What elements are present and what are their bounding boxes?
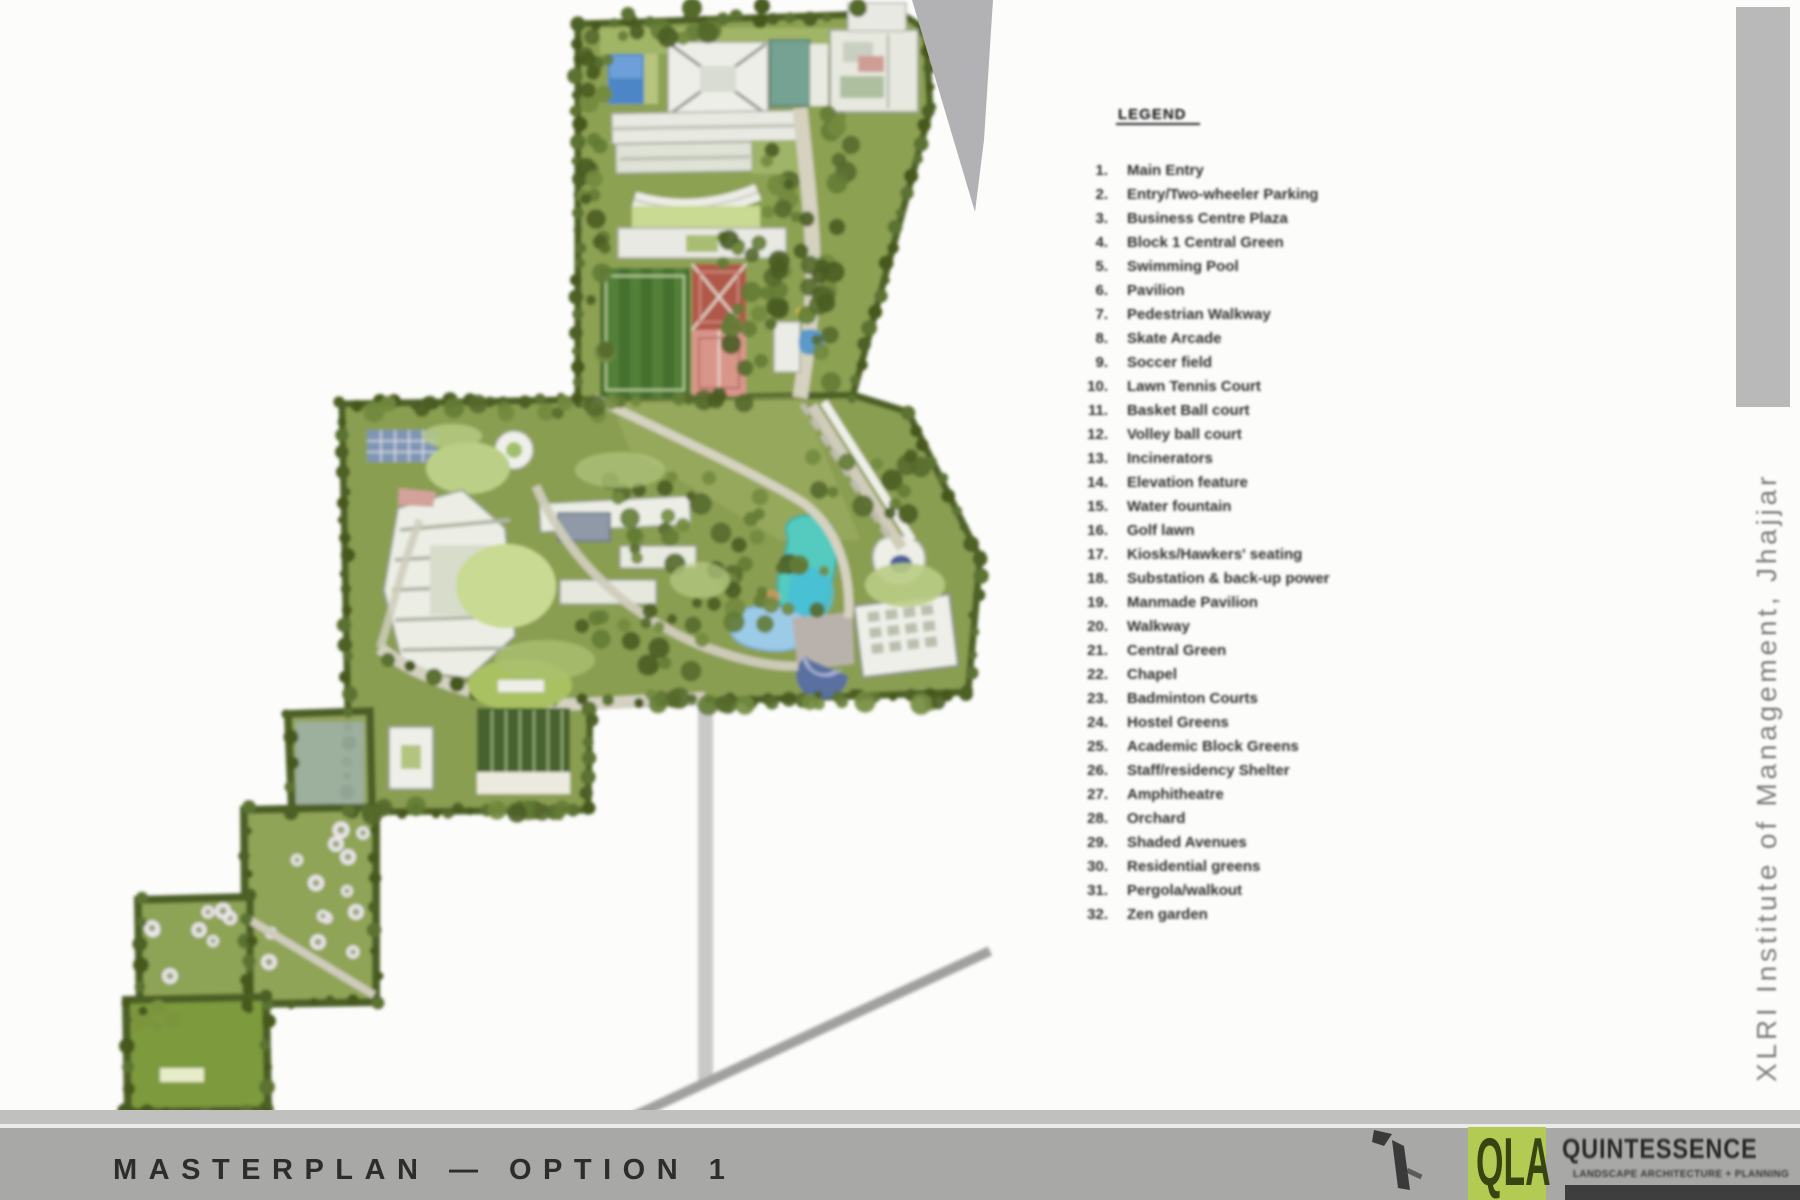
svg-text:13.: 13. — [1087, 450, 1108, 467]
svg-text:Elevation feature: Elevation feature — [1127, 474, 1248, 491]
svg-text:17.: 17. — [1087, 546, 1108, 563]
svg-text:Zen garden: Zen garden — [1127, 906, 1208, 923]
svg-text:Amphitheatre: Amphitheatre — [1127, 786, 1224, 803]
svg-text:28.: 28. — [1087, 810, 1108, 827]
svg-text:Staff/residency Shelter: Staff/residency Shelter — [1127, 762, 1290, 779]
svg-text:Golf lawn: Golf lawn — [1127, 522, 1195, 539]
svg-text:Water fountain: Water fountain — [1127, 498, 1231, 515]
svg-text:10.: 10. — [1087, 378, 1108, 395]
svg-text:16.: 16. — [1087, 522, 1108, 539]
svg-text:Business Centre Plaza: Business Centre Plaza — [1127, 210, 1289, 227]
svg-text:Academic Block Greens: Academic Block Greens — [1127, 738, 1299, 755]
svg-text:27.: 27. — [1087, 786, 1108, 803]
svg-text:Lawn Tennis Court: Lawn Tennis Court — [1127, 378, 1261, 395]
svg-text:4.: 4. — [1095, 234, 1108, 251]
svg-text:Badminton Courts: Badminton Courts — [1127, 690, 1258, 707]
svg-text:18.: 18. — [1087, 570, 1108, 587]
svg-text:5.: 5. — [1095, 258, 1108, 275]
svg-text:21.: 21. — [1087, 642, 1108, 659]
svg-text:25.: 25. — [1087, 738, 1108, 755]
svg-text:Pedestrian Walkway: Pedestrian Walkway — [1127, 306, 1271, 323]
svg-text:LANDSCAPE ARCHITECTURE + PLANN: LANDSCAPE ARCHITECTURE + PLANNING — [1573, 1169, 1789, 1180]
svg-text:Orchard: Orchard — [1127, 810, 1185, 827]
svg-text:Manmade Pavilion: Manmade Pavilion — [1127, 594, 1258, 611]
svg-text:Block 1 Central Green: Block 1 Central Green — [1127, 234, 1284, 251]
svg-text:15.: 15. — [1087, 498, 1108, 515]
svg-text:Substation & back-up power: Substation & back-up power — [1127, 570, 1330, 587]
svg-text:XLRI Institute of Management,: XLRI Institute of Management, Jhajjar — [1751, 473, 1782, 1082]
svg-text:14.: 14. — [1087, 474, 1108, 491]
svg-text:1.: 1. — [1095, 162, 1108, 179]
svg-text:Chapel: Chapel — [1127, 666, 1177, 683]
svg-text:LEGEND: LEGEND — [1118, 106, 1187, 123]
svg-text:Pergola/walkout: Pergola/walkout — [1127, 882, 1242, 899]
svg-text:Pavilion: Pavilion — [1127, 282, 1185, 299]
svg-text:30.: 30. — [1087, 858, 1108, 875]
svg-text:32.: 32. — [1087, 906, 1108, 923]
svg-text:6.: 6. — [1095, 282, 1108, 299]
svg-text:7.: 7. — [1095, 306, 1108, 323]
svg-text:11.: 11. — [1088, 402, 1108, 419]
svg-text:9.: 9. — [1095, 354, 1108, 371]
svg-text:Skate Arcade: Skate Arcade — [1127, 330, 1222, 347]
svg-text:Shaded Avenues: Shaded Avenues — [1127, 834, 1247, 851]
svg-text:24.: 24. — [1087, 714, 1108, 731]
svg-text:QLA: QLA — [1476, 1125, 1551, 1200]
svg-text:Central Green: Central Green — [1127, 642, 1226, 659]
svg-text:12.: 12. — [1087, 426, 1108, 443]
svg-text:23.: 23. — [1087, 690, 1108, 707]
svg-text:Swimming Pool: Swimming Pool — [1127, 258, 1239, 275]
svg-text:Hostel Greens: Hostel Greens — [1127, 714, 1229, 731]
svg-text:19.: 19. — [1087, 594, 1108, 611]
svg-text:3.: 3. — [1095, 210, 1108, 227]
svg-text:Walkway: Walkway — [1127, 618, 1190, 635]
svg-text:Kiosks/Hawkers' seating: Kiosks/Hawkers' seating — [1127, 546, 1302, 563]
svg-text:Entry/Two-wheeler Parking: Entry/Two-wheeler Parking — [1127, 186, 1318, 203]
svg-text:29.: 29. — [1087, 834, 1108, 851]
svg-text:MASTERPLAN — OPTION 1: MASTERPLAN — OPTION 1 — [113, 1154, 736, 1186]
svg-text:20.: 20. — [1087, 618, 1108, 635]
svg-text:Incinerators: Incinerators — [1127, 450, 1213, 467]
svg-text:Volley ball court: Volley ball court — [1127, 426, 1242, 443]
svg-text:Residential greens: Residential greens — [1127, 858, 1260, 875]
svg-text:26.: 26. — [1087, 762, 1108, 779]
svg-text:8.: 8. — [1095, 330, 1108, 347]
svg-text:22.: 22. — [1087, 666, 1108, 683]
svg-text:QUINTESSENCE: QUINTESSENCE — [1562, 1134, 1758, 1164]
svg-text:Main Entry: Main Entry — [1127, 162, 1204, 179]
svg-text:Basket Ball court: Basket Ball court — [1127, 402, 1250, 419]
svg-text:2.: 2. — [1095, 186, 1108, 203]
svg-text:Soccer field: Soccer field — [1127, 354, 1212, 371]
svg-text:31.: 31. — [1087, 882, 1108, 899]
